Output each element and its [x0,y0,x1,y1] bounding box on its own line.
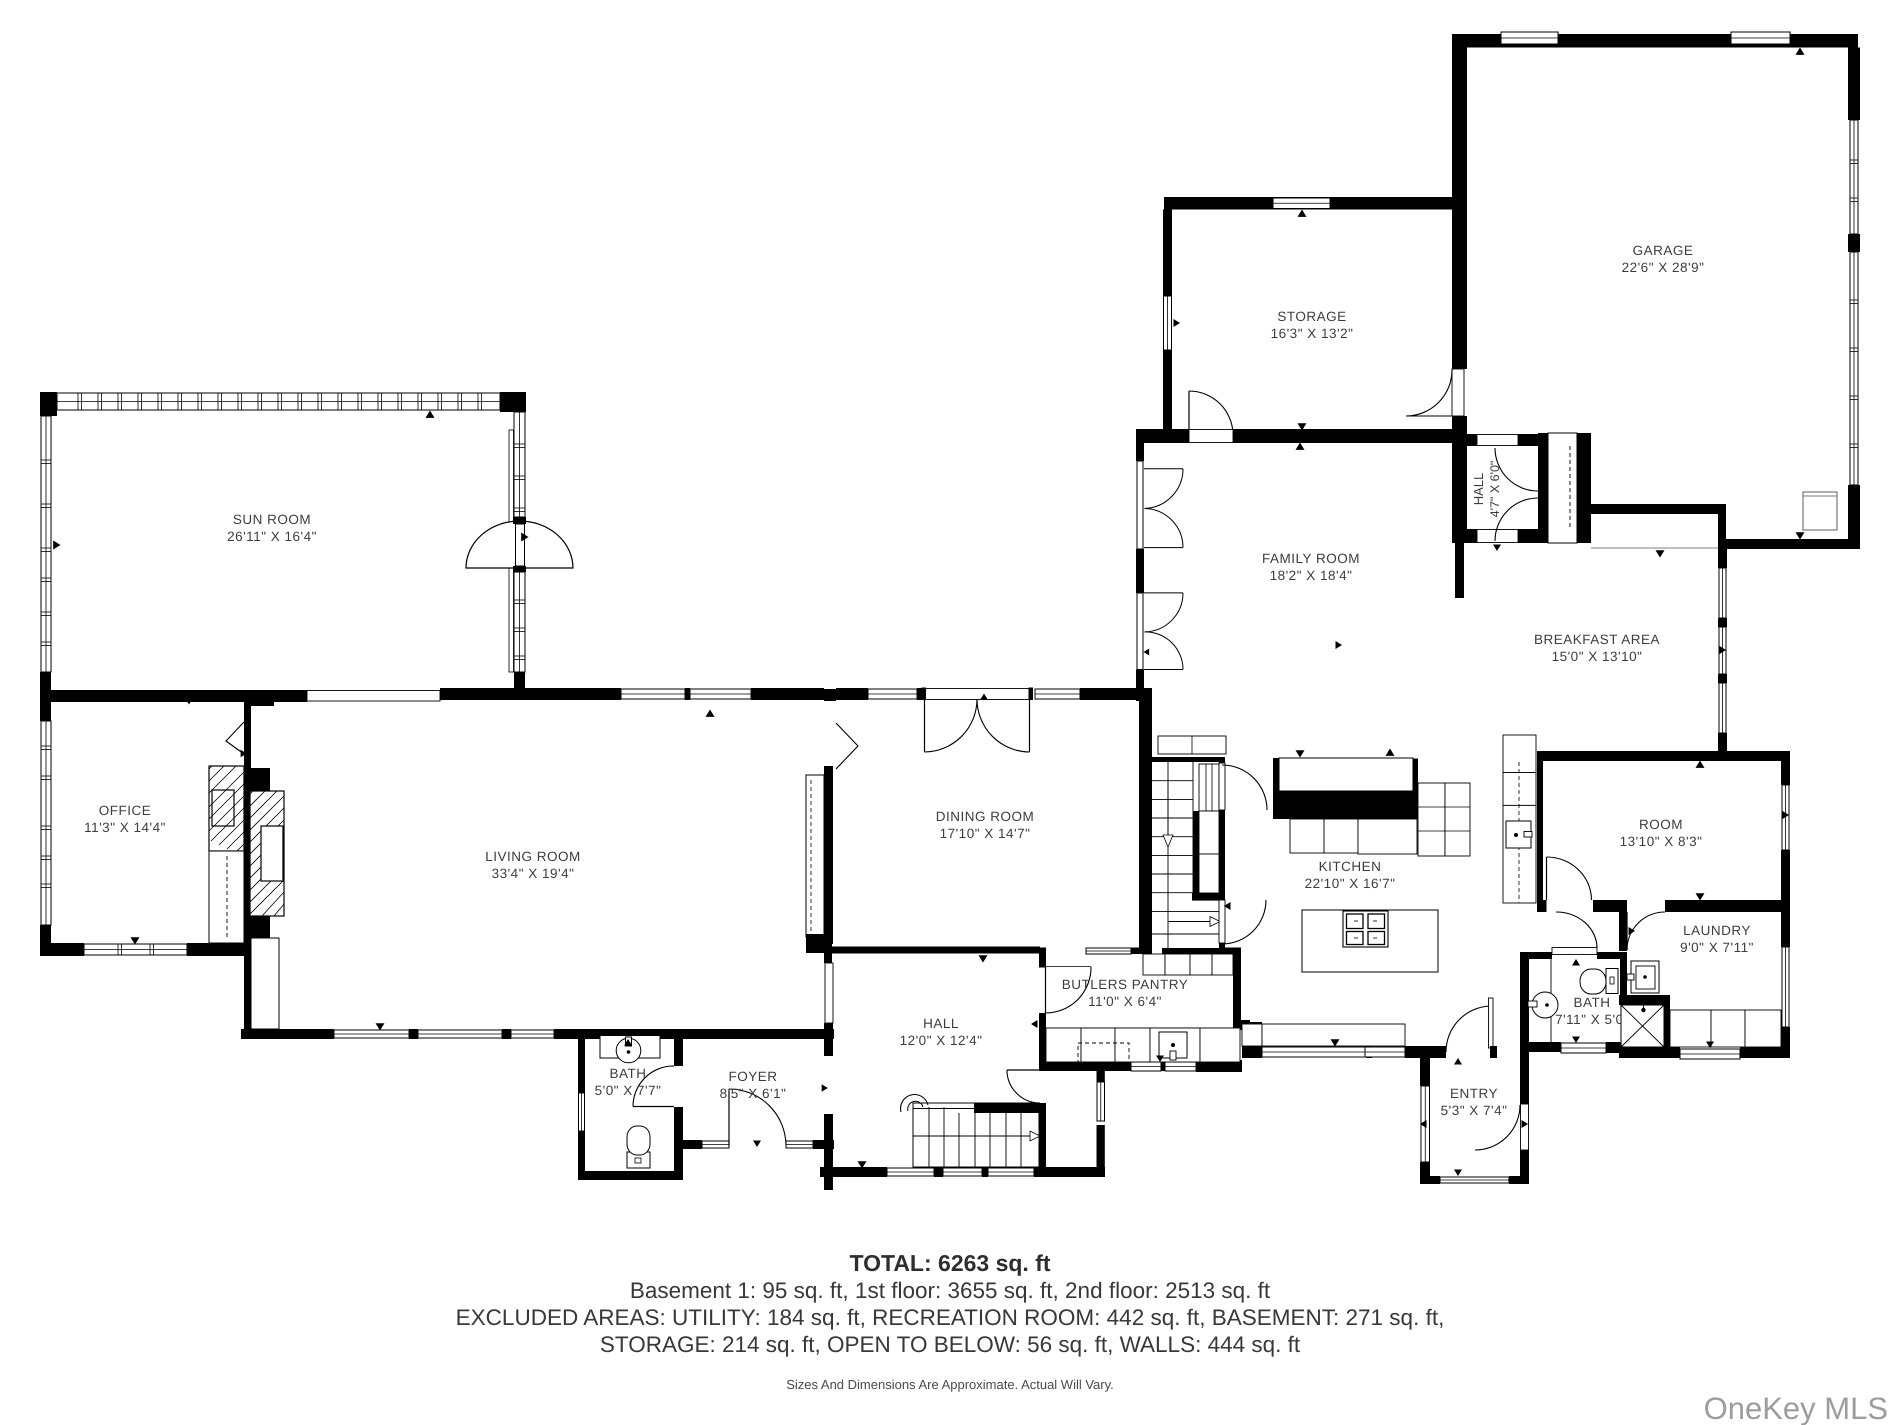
svg-text:LIVING ROOM: LIVING ROOM [485,849,581,864]
svg-text:11'0" X 6'4": 11'0" X 6'4" [1088,994,1162,1009]
svg-text:HALL: HALL [923,1016,959,1031]
svg-text:EXCLUDED AREAS: UTILITY: 184 s: EXCLUDED AREAS: UTILITY: 184 sq. ft, REC… [456,1305,1445,1330]
svg-text:18'2" X 18'4": 18'2" X 18'4" [1270,568,1353,583]
svg-text:33'4" X 19'4": 33'4" X 19'4" [492,866,575,881]
svg-text:ENTRY: ENTRY [1450,1086,1498,1101]
svg-text:5'0" X 7'7": 5'0" X 7'7" [595,1083,662,1098]
svg-text:ROOM: ROOM [1639,817,1683,832]
svg-text:GARAGE: GARAGE [1633,243,1694,258]
svg-text:12'0" X 12'4": 12'0" X 12'4" [900,1033,983,1048]
svg-text:17'10" X 14'7": 17'10" X 14'7" [940,826,1031,841]
svg-text:OneKey MLS: OneKey MLS [1704,1391,1888,1425]
svg-text:STORAGE: STORAGE [1277,309,1346,324]
svg-text:7'11" X 5'0": 7'11" X 5'0" [1555,1012,1629,1027]
svg-text:11'3" X 14'4": 11'3" X 14'4" [84,820,166,835]
svg-text:26'11" X 16'4": 26'11" X 16'4" [227,529,317,544]
svg-text:HALL: HALL [1471,473,1486,506]
svg-text:13'10" X 8'3": 13'10" X 8'3" [1620,834,1703,849]
svg-text:8'5" X 6'1": 8'5" X 6'1" [720,1086,787,1101]
svg-text:FOYER: FOYER [728,1069,777,1084]
svg-text:22'6" X 28'9": 22'6" X 28'9" [1622,260,1705,275]
svg-text:22'10" X 16'7": 22'10" X 16'7" [1305,876,1396,891]
svg-text:Sizes And Dimensions Are Appro: Sizes And Dimensions Are Approximate. Ac… [786,1377,1114,1392]
svg-text:4'7" X 6'0": 4'7" X 6'0" [1488,461,1502,518]
svg-text:BATH: BATH [1573,995,1610,1010]
svg-text:STORAGE: 214 sq. ft, OPEN TO B: STORAGE: 214 sq. ft, OPEN TO BELOW: 56 s… [600,1332,1301,1357]
svg-text:9'0" X 7'11": 9'0" X 7'11" [1680,940,1754,955]
svg-text:BUTLERS PANTRY: BUTLERS PANTRY [1062,977,1189,992]
svg-text:BATH: BATH [609,1066,646,1081]
svg-text:LAUNDRY: LAUNDRY [1683,923,1751,938]
svg-text:16'3" X 13'2": 16'3" X 13'2" [1271,326,1354,341]
svg-text:Basement 1: 95 sq. ft, 1st flo: Basement 1: 95 sq. ft, 1st floor: 3655 s… [630,1278,1271,1303]
svg-text:15'0" X 13'10": 15'0" X 13'10" [1552,649,1643,664]
svg-text:FAMILY ROOM: FAMILY ROOM [1262,551,1360,566]
svg-text:5'3" X 7'4": 5'3" X 7'4" [1441,1103,1508,1118]
svg-text:OFFICE: OFFICE [99,803,152,818]
svg-text:KITCHEN: KITCHEN [1319,859,1382,874]
svg-text:DINING ROOM: DINING ROOM [936,809,1035,824]
svg-text:TOTAL: 6263 sq. ft: TOTAL: 6263 sq. ft [849,1250,1050,1276]
svg-text:BREAKFAST AREA: BREAKFAST AREA [1534,632,1660,647]
svg-text:SUN ROOM: SUN ROOM [233,512,311,527]
